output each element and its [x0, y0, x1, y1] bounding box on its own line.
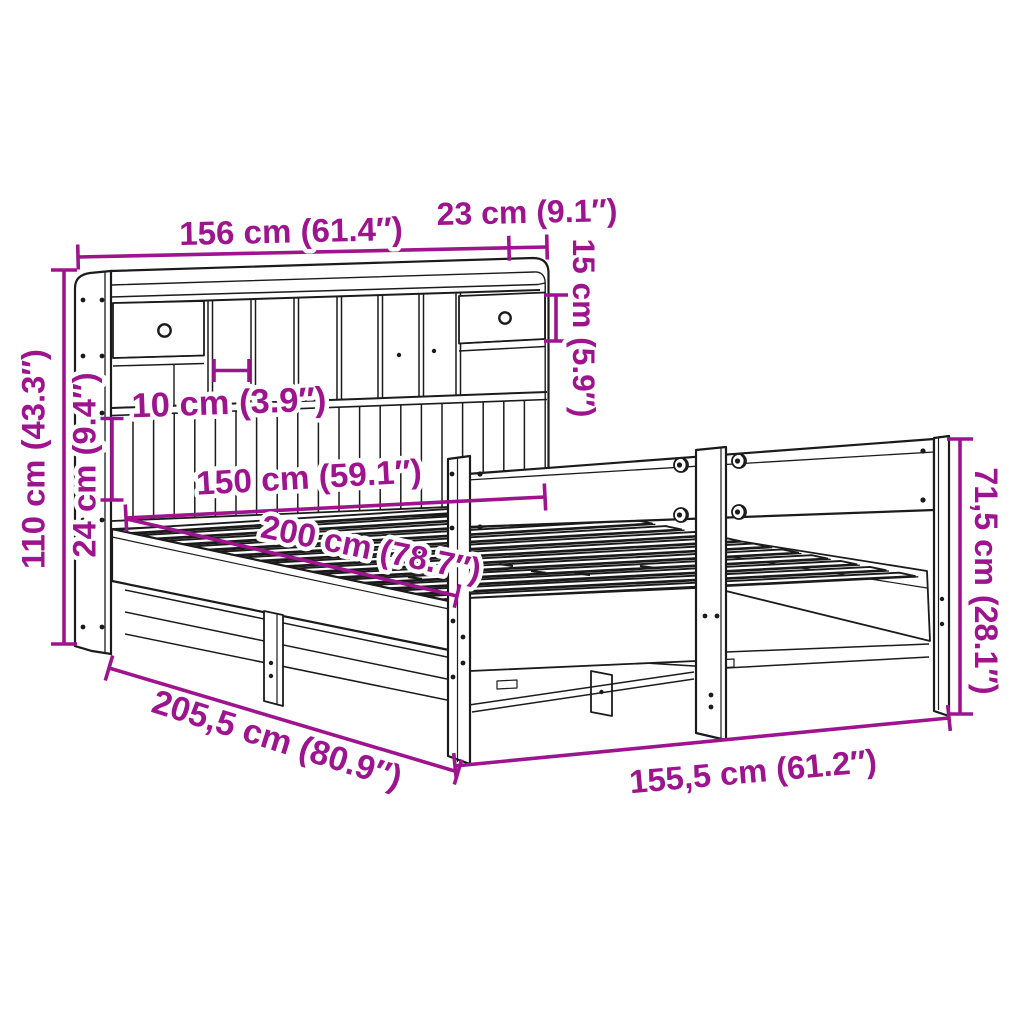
svg-text:23 cm (9.1″): 23 cm (9.1″): [436, 192, 618, 232]
svg-text:71,5 cm (28.1″): 71,5 cm (28.1″): [968, 467, 1004, 694]
svg-text:110 cm (43.3″): 110 cm (43.3″): [15, 349, 52, 569]
svg-text:24 cm (9.4″): 24 cm (9.4″): [66, 372, 103, 557]
svg-text:156 cm (61.4″): 156 cm (61.4″): [179, 211, 403, 253]
svg-text:15 cm (5.9″): 15 cm (5.9″): [566, 239, 602, 418]
svg-text:10 cm (3.9″): 10 cm (3.9″): [131, 381, 327, 426]
